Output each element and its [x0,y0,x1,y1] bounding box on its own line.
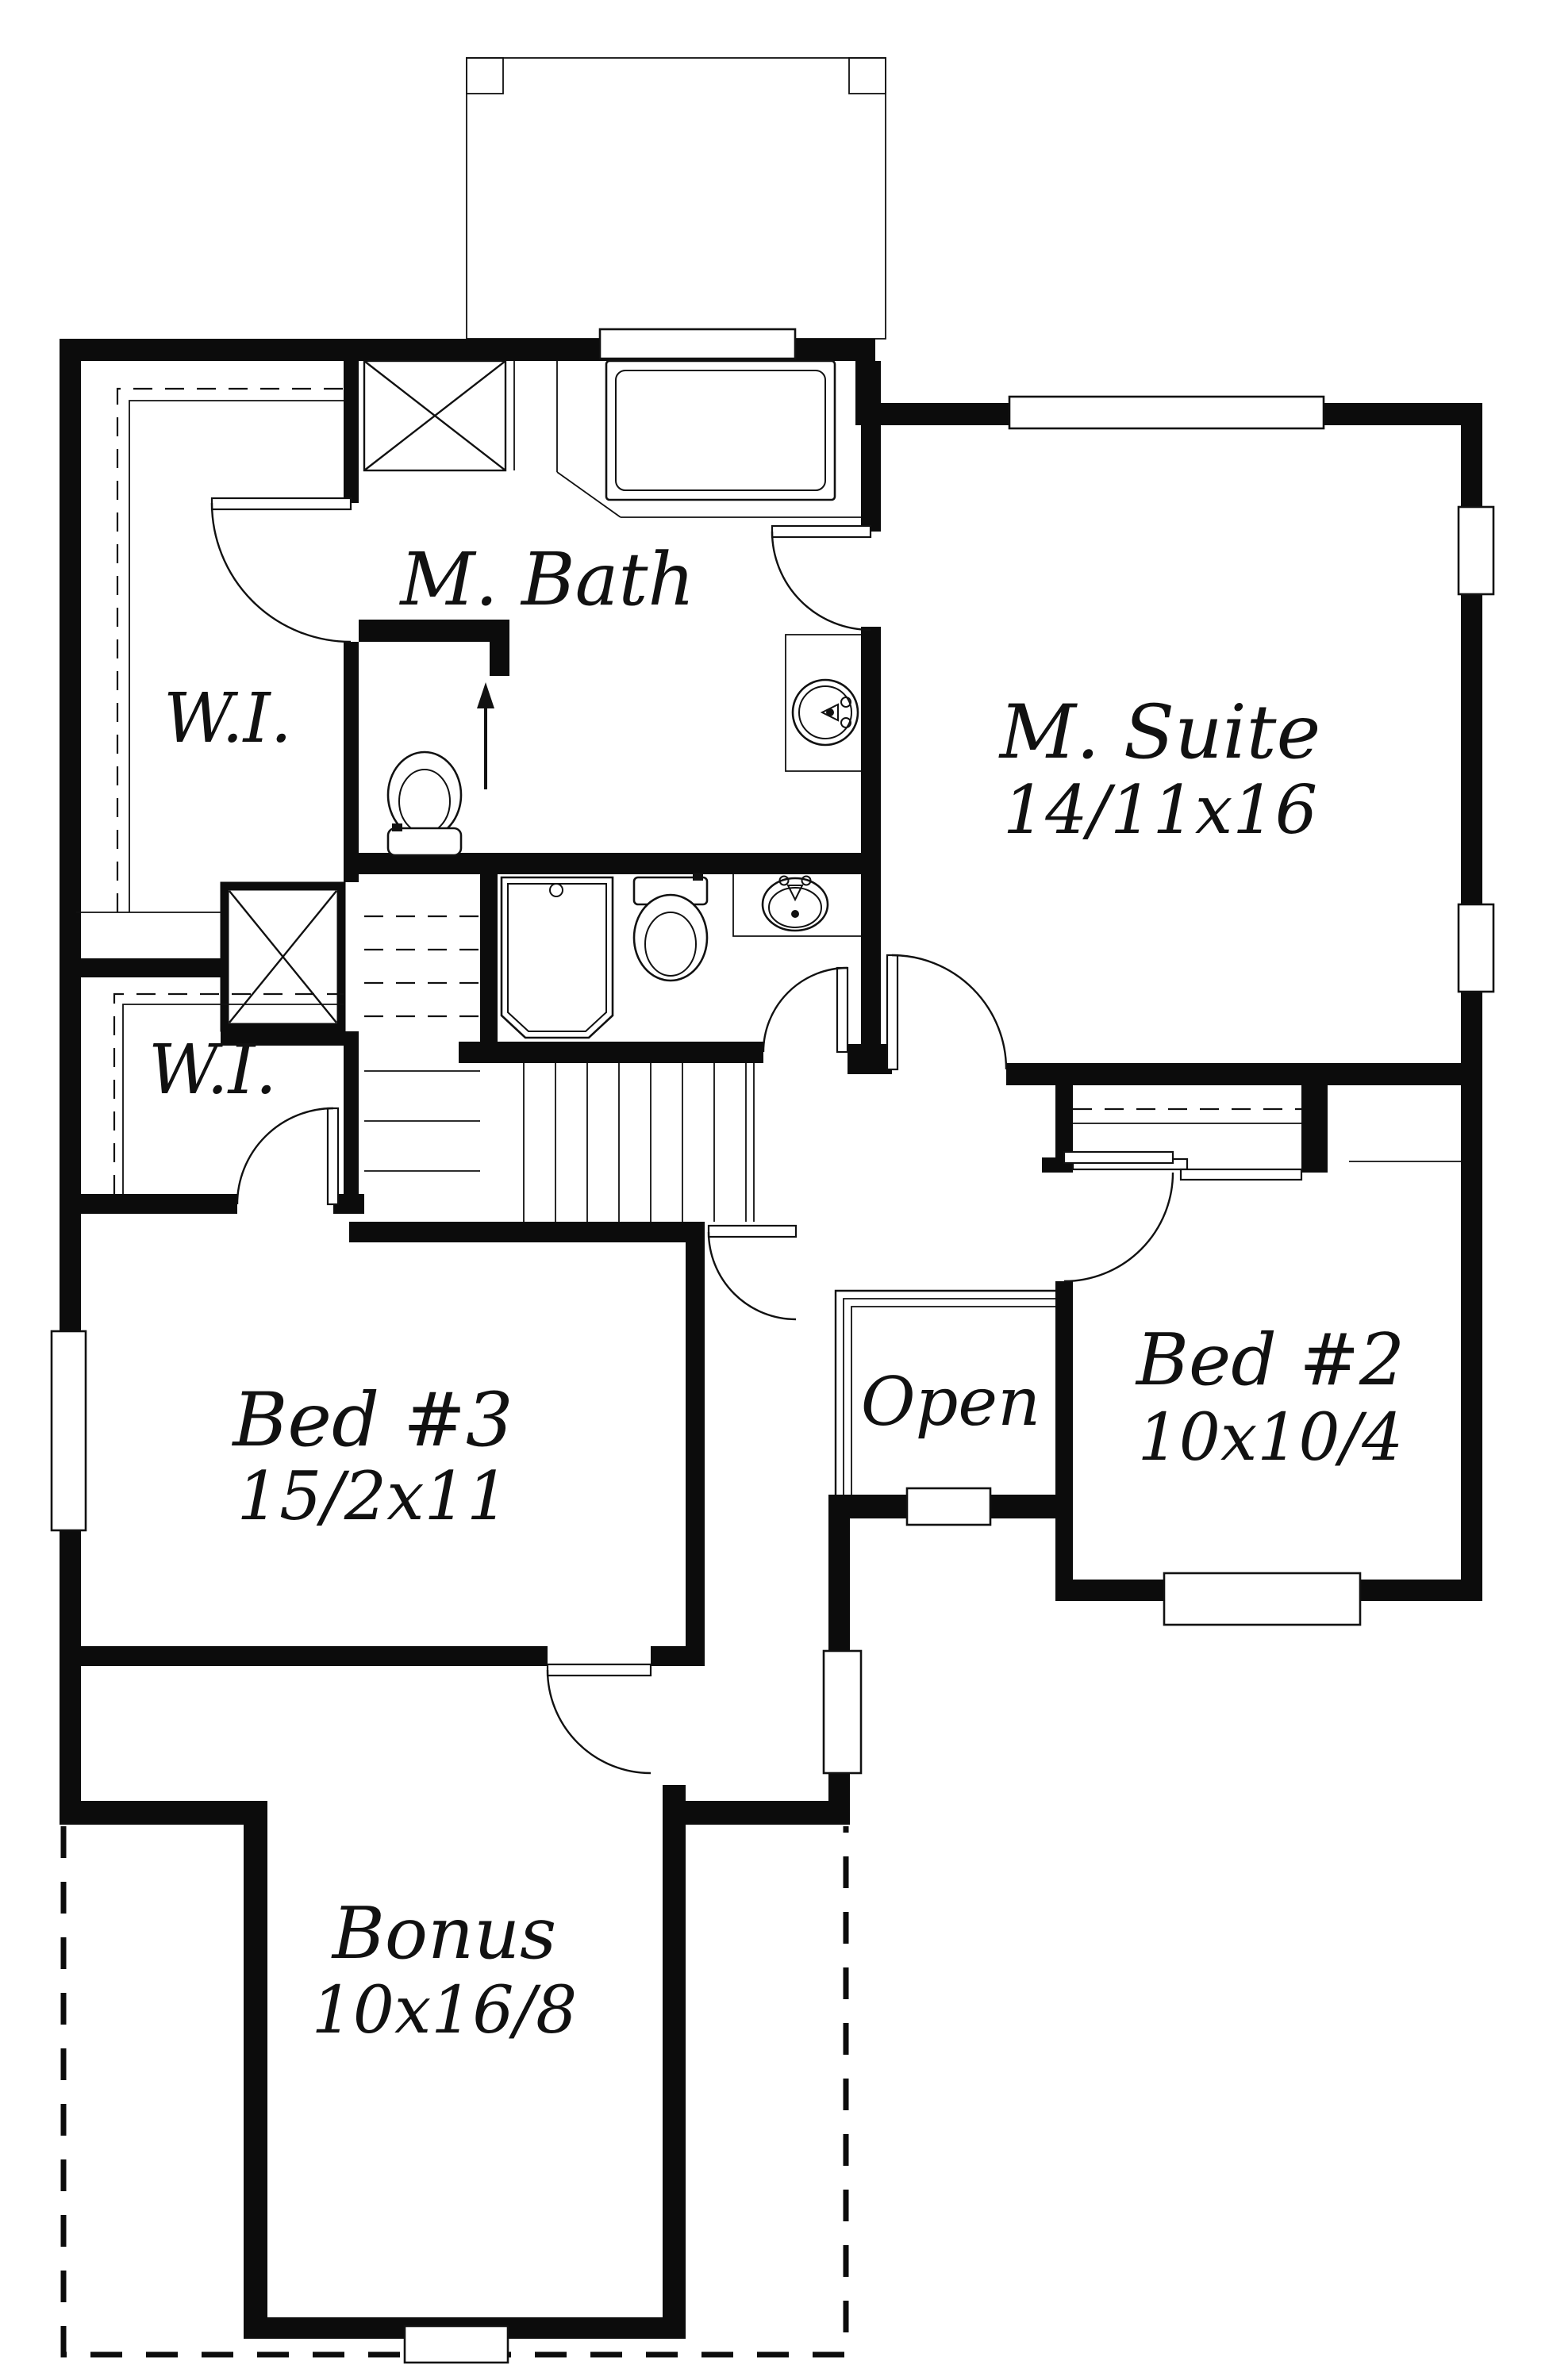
wall-toilet-nook [359,620,509,642]
closet-bypass-door-right[interactable] [1181,1169,1301,1180]
room-label-bed3: Bed #3 [231,1377,513,1464]
stair-direction-arrow [477,682,494,789]
linen-closet-stair [221,886,345,1046]
door-wc[interactable] [763,968,848,1052]
wall-wi2-right [344,1031,359,1214]
room-dims-bed3: 15/2x11 [237,1457,509,1535]
window-suite-top [1009,397,1324,428]
wall-hall-east-a [828,1518,850,1653]
roof-outline-above [467,58,886,339]
window-hall-east [824,1651,861,1773]
window-open-wall [907,1488,990,1525]
wall-suite-bottom [1006,1063,1482,1085]
room-label-wi-lower: W.I. [148,1031,277,1110]
wc-sink-icon [733,874,861,936]
window-suite-right-upper [1459,507,1493,594]
room-dims-m-suite: 14/11x16 [1003,771,1317,849]
floor-plan: M. Bath W.I. W.I. M. Suite 14/11x16 Bed … [0,0,1549,2380]
wall-bonus-right [663,1785,686,2339]
wall-bed2-left-b [1055,1281,1073,1601]
wall-bed3-right [686,1222,705,1646]
bed2-closet [1073,1109,1461,1180]
wall-bath-suite-divider-b [861,627,881,1044]
wall-wi1-right-a [344,361,359,503]
wall-exterior-left [60,339,81,1821]
room-dims-bed2: 10x10/4 [1138,1400,1404,1476]
room-label-wi-upper: W.I. [163,679,292,758]
wall-stair-top [459,1042,763,1063]
bathtub-icon [557,361,861,517]
door-wi-lower[interactable] [237,1108,338,1204]
toilet-icon-wc [634,873,707,981]
wall-bath-suite-divider-a [861,361,881,532]
wall-wi1-right-b [344,642,359,882]
wall-wi-divider [76,958,221,977]
wall-bed3-bottom-a [76,1646,548,1666]
roof-corner-post-left [467,58,503,94]
room-label-m-bath: M. Bath [398,537,694,622]
room-label-bonus: Bonus [331,1892,556,1975]
window-bonus-bottom [405,2326,508,2363]
room-label-bed2: Bed #2 [1135,1319,1405,1402]
door-wi-upper[interactable] [212,498,351,642]
wall-bonus-left [244,1801,267,2339]
window-top [600,329,795,359]
wall-hall-cap [848,1044,892,1074]
toilet-icon-nook [388,752,461,855]
window-suite-right-lower [1459,904,1493,992]
wall-porch-corner [663,1801,850,1825]
wall-left-bottom-corner [60,1801,267,1825]
door-bed2[interactable] [1064,1152,1173,1281]
roof-corner-post-right [849,58,886,94]
door-hall-landing[interactable] [709,1226,796,1319]
room-label-open: Open [861,1363,1040,1441]
room-dims-bonus: 10x16/8 [312,1973,578,2048]
vanity-sink-icon [786,635,861,771]
wall-wc-divider [480,874,498,1063]
wall-toilet-nook-stub [490,642,509,676]
window-bed2-bottom [1164,1573,1360,1625]
door-bath-suite[interactable] [772,526,871,630]
window-bed3-left [52,1331,86,1530]
door-suite-hall[interactable] [887,955,1006,1069]
wall-stair-bottom [349,1222,686,1242]
wall-bed3-top-a [76,1194,237,1214]
shower-icon [502,877,613,1038]
wall-bed2-closet-right [1301,1065,1328,1173]
wi-upper-shelving [76,389,344,912]
door-bed3[interactable] [548,1664,651,1773]
linen-closet-upper [364,361,514,470]
room-label-m-suite: M. Suite [998,689,1320,776]
wall-bed3-bottom-b [651,1646,705,1666]
